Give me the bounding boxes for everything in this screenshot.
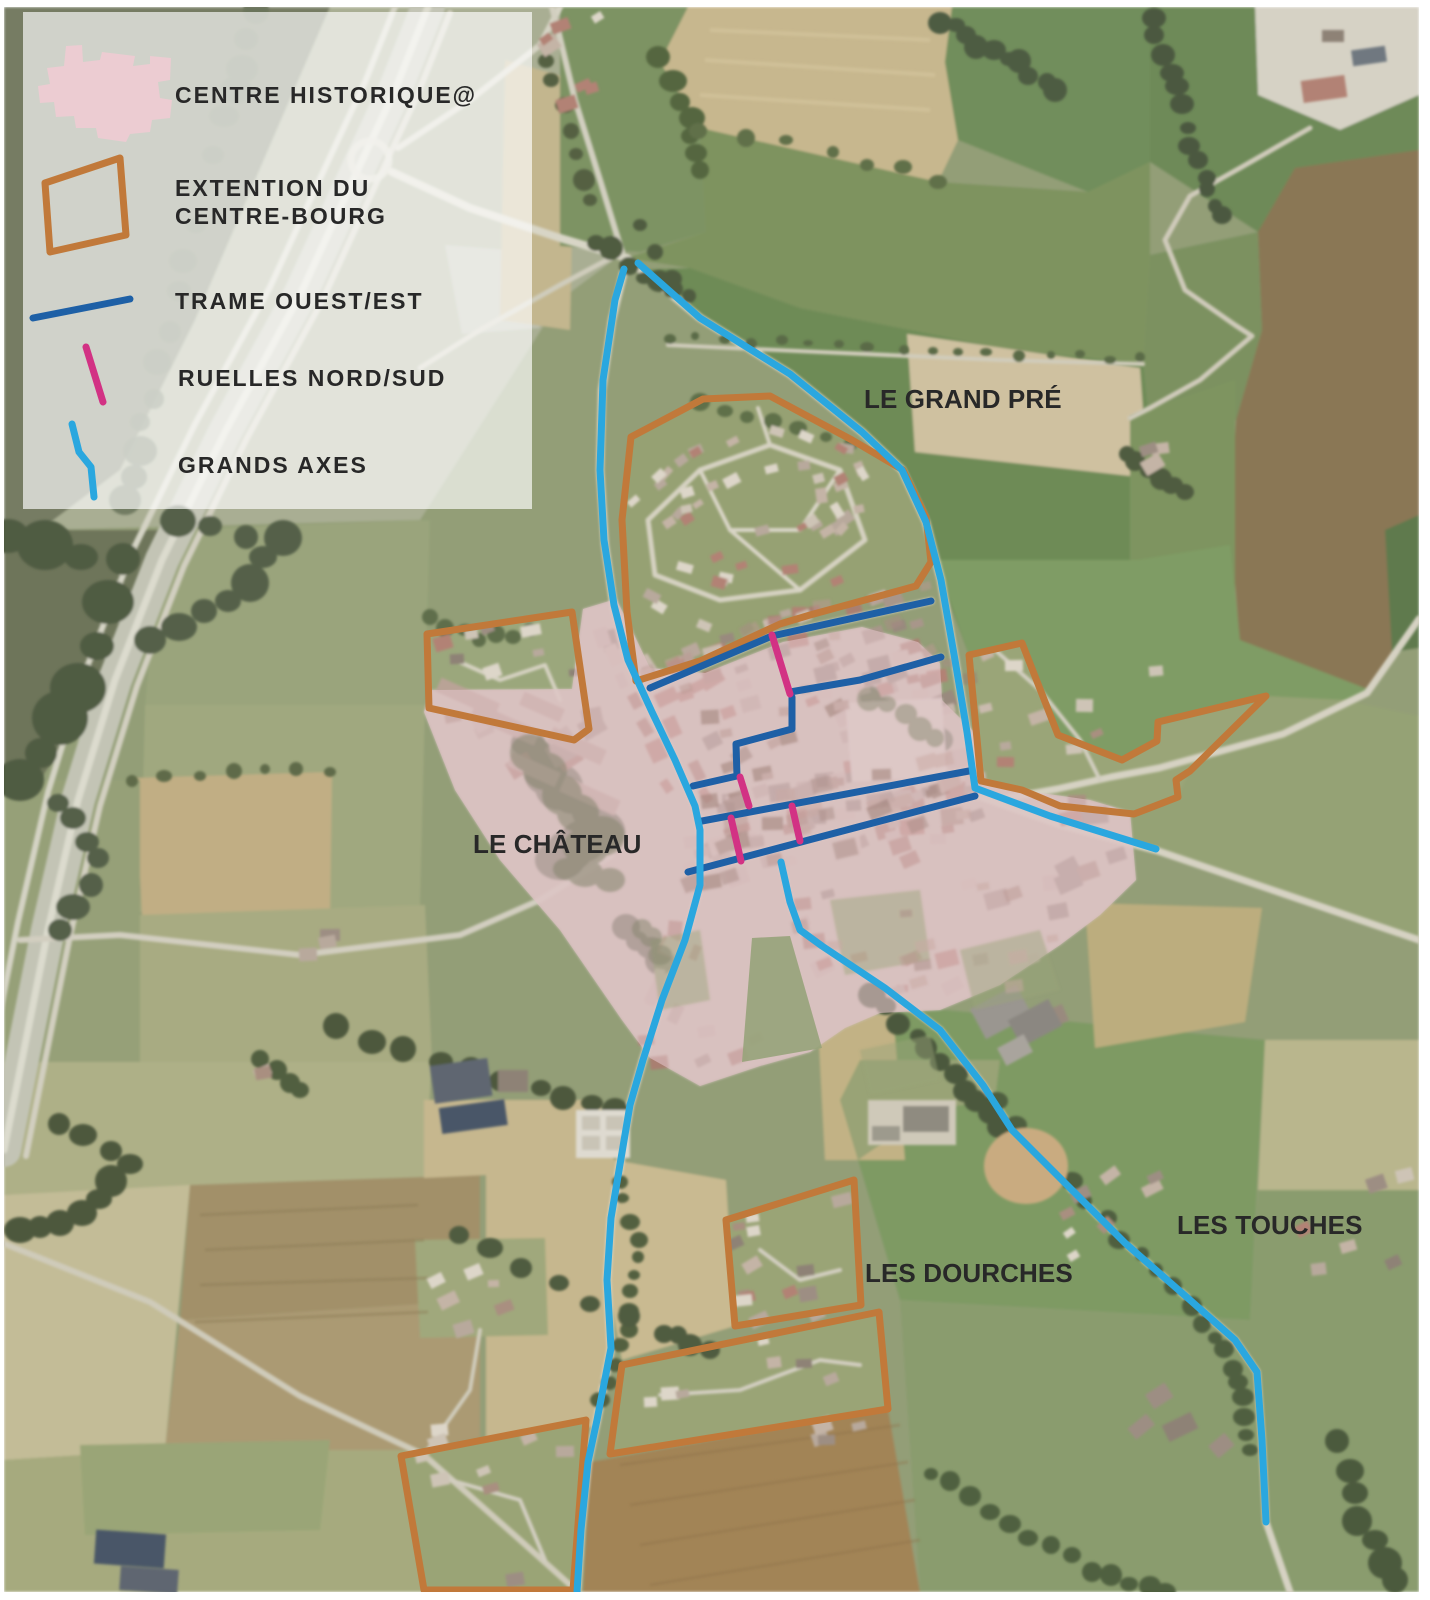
svg-text:GRANDS AXES: GRANDS AXES bbox=[178, 452, 368, 478]
svg-text:TRAME OUEST/EST: TRAME OUEST/EST bbox=[175, 288, 424, 314]
svg-text:RUELLES NORD/SUD: RUELLES NORD/SUD bbox=[178, 365, 446, 391]
svg-text:LE CHÂTEAU: LE CHÂTEAU bbox=[473, 829, 642, 859]
svg-text:EXTENTION DU: EXTENTION DU bbox=[175, 175, 370, 201]
svg-text:LES DOURCHES: LES DOURCHES bbox=[865, 1258, 1073, 1288]
svg-text:LE GRAND PRÉ: LE GRAND PRÉ bbox=[864, 384, 1062, 414]
svg-text:CENTRE-BOURG: CENTRE-BOURG bbox=[175, 203, 387, 229]
svg-text:LES TOUCHES: LES TOUCHES bbox=[1177, 1210, 1363, 1240]
svg-text:CENTRE HISTORIQUE@: CENTRE HISTORIQUE@ bbox=[175, 82, 477, 108]
